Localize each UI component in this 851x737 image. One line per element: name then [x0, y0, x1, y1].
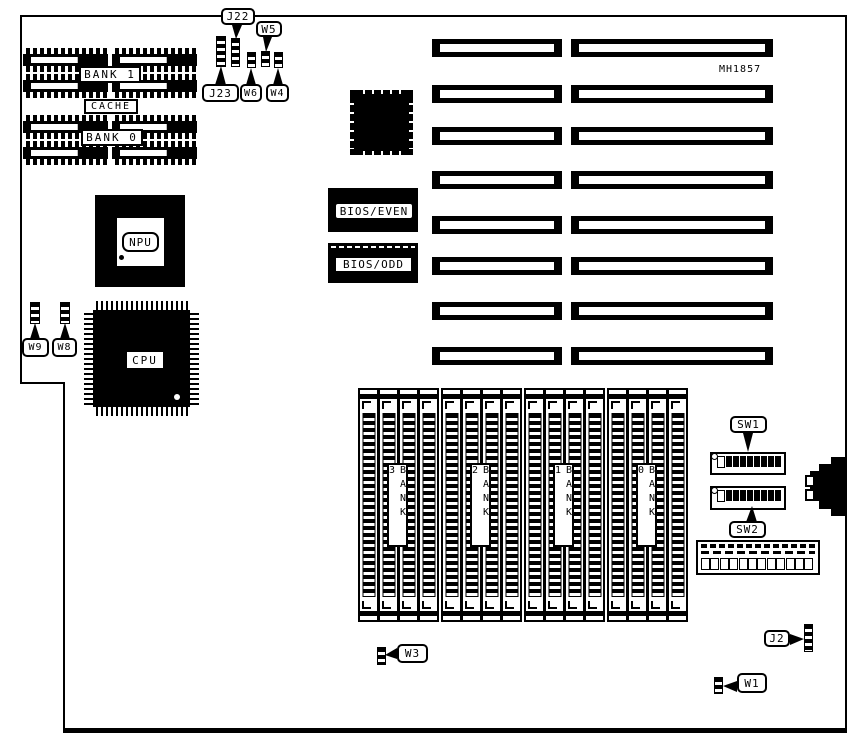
simm-socket-topbar — [360, 394, 377, 399]
npu-pin1-dot — [119, 255, 124, 260]
simm-socket-latch-top — [548, 401, 557, 409]
simm-socket-1-4 — [418, 388, 439, 622]
leader-w4 — [273, 68, 283, 85]
isa-slot-long-1 — [571, 39, 773, 57]
leader-j23 — [215, 66, 226, 85]
dip-position-4 — [747, 490, 753, 501]
edge-connector-square-1 — [701, 558, 710, 570]
simm-socket-contacts — [611, 413, 624, 597]
isa-slot-short-5 — [432, 216, 562, 234]
isa-slot-long-inner — [579, 307, 765, 315]
jumper-w3-block — [377, 647, 386, 665]
simm-socket-latch-top — [671, 401, 680, 409]
simm-socket-botbar — [629, 611, 646, 616]
dip-position-3 — [740, 490, 746, 501]
dip-position-8 — [775, 456, 781, 467]
isa-slot-long-inner — [579, 262, 765, 270]
jumper-j22-block — [231, 38, 240, 67]
simm-socket-botbar — [586, 611, 603, 616]
simm-socket-latch-top — [465, 401, 474, 409]
isa-slot-long-3 — [571, 127, 773, 145]
qfp-pins-right — [409, 96, 413, 149]
cpu-label: CPU — [127, 352, 163, 368]
isa-slot-short-2 — [432, 85, 562, 103]
simm-socket-topbar — [503, 394, 520, 399]
jumper-w4-block — [274, 52, 283, 68]
isa-slot-long-inner — [579, 132, 765, 140]
edge-connector-square-2 — [710, 558, 719, 570]
leader-w1 — [723, 681, 737, 692]
jumper-w8-label: W8 — [52, 338, 77, 357]
jumper-j2-label: J2 — [764, 630, 790, 647]
dip-position-1 — [726, 456, 732, 467]
simm-socket-3-1 — [524, 388, 545, 622]
isa-slot-short-inner — [440, 262, 554, 270]
simm-socket-latch-bottom — [651, 601, 660, 609]
simm-socket-latch-top — [505, 401, 514, 409]
isa-slot-short-inner — [440, 221, 554, 229]
jumper-w5-block — [261, 51, 270, 67]
simm-bank-label-2: BANK 2 — [470, 463, 491, 547]
simm-socket-topbar — [420, 394, 437, 399]
simm-socket-latch-bottom — [631, 601, 640, 609]
simm-socket-latch-top — [422, 401, 431, 409]
cache-label: CACHE — [84, 99, 138, 114]
simm-socket-topbar — [669, 394, 686, 399]
simm-socket-latch-bottom — [568, 601, 577, 609]
dip-position-7 — [768, 456, 774, 467]
simm-socket-3-4 — [584, 388, 605, 622]
isa-slot-long-7 — [571, 302, 773, 320]
keyboard-connector-notch-1 — [806, 476, 814, 486]
jumper-w8-block — [60, 302, 70, 324]
edge-connector — [696, 540, 820, 575]
simm-socket-latch-top — [362, 401, 371, 409]
simm-socket-botbar — [360, 611, 377, 616]
simm-socket-latch-bottom — [671, 601, 680, 609]
isa-slot-long-2 — [571, 85, 773, 103]
leader-j22 — [232, 25, 242, 39]
simm-socket-latch-bottom — [588, 601, 597, 609]
isa-slot-short-3 — [432, 127, 562, 145]
cache-bank1-label: BANK 1 — [79, 66, 141, 83]
edge-connector-square-7 — [757, 558, 766, 570]
simm-socket-contacts — [505, 413, 518, 597]
isa-slot-short-inner — [440, 176, 554, 184]
qfp-pins-left — [350, 96, 354, 149]
simm-socket-topbar — [649, 394, 666, 399]
jumper-w6-label: W6 — [240, 84, 262, 102]
leader-w8 — [60, 323, 70, 339]
dip-position-5 — [754, 456, 760, 467]
simm-socket-latch-top — [611, 401, 620, 409]
isa-slot-short-8 — [432, 347, 562, 365]
simm-socket-latch-bottom — [402, 601, 411, 609]
jumper-w4-label: W4 — [266, 84, 289, 102]
board-edge-bottom — [63, 728, 847, 733]
simm-socket-latch-bottom — [445, 601, 454, 609]
simm-socket-latch-bottom — [611, 601, 620, 609]
isa-slot-short-inner — [440, 132, 554, 140]
simm-socket-botbar — [503, 611, 520, 616]
isa-slot-short-7 — [432, 302, 562, 320]
simm-socket-topbar — [483, 394, 500, 399]
simm-socket-contacts — [588, 413, 601, 597]
isa-slot-long-inner — [579, 176, 765, 184]
isa-slot-long-8 — [571, 347, 773, 365]
simm-socket-topbar — [566, 394, 583, 399]
jumper-w1-label: W1 — [737, 673, 767, 693]
simm-socket-topbar — [400, 394, 417, 399]
simm-socket-latch-top — [631, 401, 640, 409]
switch-sw1-label: SW1 — [730, 416, 767, 433]
keyboard-connector-notch-2 — [806, 490, 814, 500]
simm-socket-topbar — [546, 394, 563, 399]
edge-connector-dashes — [701, 551, 815, 554]
isa-slot-short-inner — [440, 307, 554, 315]
isa-slot-long-inner — [579, 352, 765, 360]
simm-socket-latch-top — [651, 401, 660, 409]
edge-connector-square-3 — [720, 558, 729, 570]
isa-slot-short-6 — [432, 257, 562, 275]
qfp-pins-top — [356, 90, 407, 94]
simm-socket-botbar — [546, 611, 563, 616]
dip-position-6 — [761, 490, 767, 501]
isa-slot-long-inner — [579, 90, 765, 98]
jumper-j2-block — [804, 624, 813, 652]
dip-position-open — [717, 456, 725, 468]
simm-socket-latch-bottom — [362, 601, 371, 609]
edge-connector-square-4 — [729, 558, 738, 570]
edge-connector-square-9 — [776, 558, 785, 570]
dip-position-6 — [761, 456, 767, 467]
simm-bank-label-3: BANK 1 — [553, 463, 574, 547]
jumper-j23-block — [216, 36, 226, 67]
board-edge-notch — [20, 382, 65, 384]
simm-socket-latch-bottom — [465, 601, 474, 609]
simm-socket-contacts — [445, 413, 458, 597]
npu-label: NPU — [122, 232, 159, 252]
simm-socket-topbar — [609, 394, 626, 399]
jumper-w3-label: W3 — [397, 644, 428, 663]
isa-slot-long-6 — [571, 257, 773, 275]
jumper-w1-block — [714, 677, 723, 694]
dip-position-2 — [733, 456, 739, 467]
simm-socket-latch-top — [568, 401, 577, 409]
simm-socket-topbar — [380, 394, 397, 399]
simm-socket-botbar — [483, 611, 500, 616]
isa-slot-short-4 — [432, 171, 562, 189]
isa-slot-short-inner — [440, 90, 554, 98]
simm-socket-latch-bottom — [422, 601, 431, 609]
jumper-w5-label: W5 — [256, 21, 282, 37]
simm-socket-4-1 — [607, 388, 628, 622]
simm-socket-1-1 — [358, 388, 379, 622]
simm-socket-latch-top — [445, 401, 454, 409]
board-id-text: MH1857 — [719, 64, 761, 75]
cpu-pins-right — [190, 313, 199, 405]
simm-socket-contacts — [422, 413, 435, 597]
jumper-w6-block — [247, 52, 256, 68]
simm-socket-topbar — [463, 394, 480, 399]
simm-socket-latch-top — [588, 401, 597, 409]
leader-w5 — [263, 37, 272, 52]
simm-socket-contacts — [528, 413, 541, 597]
simm-socket-latch-top — [402, 401, 411, 409]
simm-socket-latch-bottom — [485, 601, 494, 609]
jumper-w9-block — [30, 302, 40, 324]
simm-socket-2-4 — [501, 388, 522, 622]
simm-socket-latch-top — [485, 401, 494, 409]
simm-bank-label-4: BANK 0 — [636, 463, 657, 547]
dip-position-5 — [754, 490, 760, 501]
simm-socket-topbar — [443, 394, 460, 399]
simm-socket-botbar — [380, 611, 397, 616]
bios-odd-dashes — [331, 246, 415, 248]
qfp-pins-bottom — [356, 151, 407, 155]
simm-socket-latch-bottom — [548, 601, 557, 609]
leader-w6 — [246, 68, 256, 85]
dip-position-1 — [726, 490, 732, 501]
bios-even-label: BIOS/EVEN — [334, 202, 414, 220]
isa-slot-short-inner — [440, 352, 554, 360]
cache-bank0-label: BANK 0 — [81, 129, 143, 146]
board-edge-left-upper — [20, 15, 22, 384]
simm-socket-botbar — [400, 611, 417, 616]
jumper-j23-label: J23 — [202, 84, 239, 102]
simm-socket-botbar — [526, 611, 543, 616]
isa-slot-short-1 — [432, 39, 562, 57]
simm-socket-botbar — [609, 611, 626, 616]
edge-connector-square-5 — [739, 558, 748, 570]
simm-socket-botbar — [566, 611, 583, 616]
board-edge-left-lower — [63, 382, 65, 733]
isa-slot-long-5 — [571, 216, 773, 234]
bios-odd-label: BIOS/ODD — [334, 256, 413, 273]
cpu-pin1-dot — [174, 394, 180, 400]
switch-sw2-label: SW2 — [729, 521, 766, 538]
simm-socket-botbar — [443, 611, 460, 616]
dip-position-4 — [747, 456, 753, 467]
leader-w3 — [385, 648, 397, 659]
cpu-pins-bottom — [96, 407, 188, 416]
edge-connector-pins — [701, 544, 815, 548]
dip-position-8 — [775, 490, 781, 501]
simm-socket-botbar — [420, 611, 437, 616]
edge-connector-square-12 — [804, 558, 813, 570]
isa-slot-short-inner — [440, 44, 554, 52]
board-edge-top — [20, 15, 847, 17]
isa-slot-long-4 — [571, 171, 773, 189]
jumper-j22-label: J22 — [221, 8, 255, 25]
board-edge-right — [845, 15, 847, 732]
dip-position-3 — [740, 456, 746, 467]
dip-position-open — [717, 490, 725, 502]
edge-connector-square-8 — [767, 558, 776, 570]
simm-socket-contacts — [362, 413, 375, 597]
simm-socket-latch-bottom — [505, 601, 514, 609]
simm-socket-2-1 — [441, 388, 462, 622]
simm-socket-latch-top — [528, 401, 537, 409]
jumper-w9-label: W9 — [22, 338, 49, 357]
simm-socket-topbar — [629, 394, 646, 399]
simm-socket-latch-bottom — [528, 601, 537, 609]
simm-socket-botbar — [649, 611, 666, 616]
isa-slot-long-inner — [579, 221, 765, 229]
chipset-qfp — [350, 90, 413, 155]
edge-connector-square-6 — [748, 558, 757, 570]
dip-switch-sw1 — [710, 452, 786, 475]
simm-socket-latch-top — [382, 401, 391, 409]
motherboard-diagram: BANK 1 CACHE BANK 0 J22 W5 J23 W6 W4 NPU… — [0, 0, 851, 737]
edge-connector-square-11 — [795, 558, 804, 570]
dip-position-2 — [733, 490, 739, 501]
keyboard-connector — [810, 457, 847, 516]
isa-slot-long-inner — [579, 44, 765, 52]
leader-w9 — [30, 323, 40, 339]
simm-socket-topbar — [586, 394, 603, 399]
simm-socket-latch-bottom — [382, 601, 391, 609]
cpu-pins-top — [96, 301, 188, 310]
simm-bank-label-1: BANK 3 — [387, 463, 408, 547]
dip-position-7 — [768, 490, 774, 501]
edge-connector-square-10 — [786, 558, 795, 570]
simm-socket-topbar — [526, 394, 543, 399]
cpu-pins-left — [84, 313, 93, 405]
simm-socket-botbar — [463, 611, 480, 616]
simm-socket-botbar — [669, 611, 686, 616]
simm-socket-4-4 — [667, 388, 688, 622]
dip-switch-sw2 — [710, 486, 786, 510]
leader-j2 — [790, 634, 804, 645]
leader-sw1 — [743, 433, 753, 452]
simm-socket-contacts — [671, 413, 684, 597]
